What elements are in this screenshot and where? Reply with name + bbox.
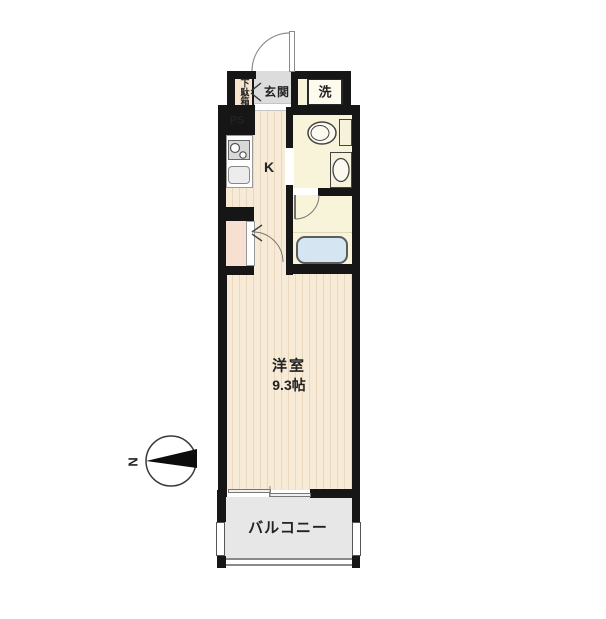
balcony-label: バルコニー <box>248 521 328 536</box>
toilet-tank <box>339 119 352 146</box>
bathtub <box>296 236 348 264</box>
wall-segment <box>291 71 298 108</box>
wall-segment <box>217 556 226 568</box>
entry-door-leaf <box>289 31 295 72</box>
wall-segment <box>352 107 360 497</box>
wall-segment <box>218 207 254 221</box>
wall-segment <box>218 275 227 497</box>
wall-segment <box>343 71 351 108</box>
bathtub-surround-line <box>292 232 352 233</box>
kitchen-label: K <box>264 160 274 174</box>
room-size-label: 9.3帖 <box>272 378 305 392</box>
wall-segment <box>286 185 293 275</box>
washroom-doorway <box>285 148 294 185</box>
compass-needle <box>146 449 197 468</box>
entry-door-swing-arc <box>252 33 290 71</box>
wall-segment <box>286 107 293 148</box>
wall-segment <box>318 188 360 196</box>
balcony-railing-bottom <box>226 558 352 566</box>
wall-segment <box>292 105 360 115</box>
compass-circle <box>146 436 196 486</box>
sliding-window-pane <box>228 489 271 493</box>
wall-segment <box>218 266 254 275</box>
pipe-space-label: PS <box>230 116 245 127</box>
balcony-railing-left <box>216 522 225 556</box>
wall-segment <box>352 556 360 568</box>
sliding-window-pane <box>269 493 311 497</box>
vanity-counter <box>330 152 352 188</box>
wall-segment <box>218 107 226 275</box>
kitchen-sink <box>228 166 250 184</box>
compass-north-label: N <box>127 457 140 466</box>
shoe-cabinet-label: 下駄箱 <box>240 79 249 106</box>
floor-plan: 玄関 下駄箱 洗 PS K 洋室 9.3帖 バルコニー N <box>0 0 606 619</box>
room-name-label: 洋室 <box>272 359 306 374</box>
wall-segment <box>217 490 226 522</box>
closet-door <box>246 221 255 266</box>
stove <box>228 140 250 160</box>
entrance-label: 玄関 <box>264 86 290 98</box>
washer-label: 洗 <box>318 86 331 99</box>
balcony-railing-right <box>352 522 361 556</box>
wall-segment <box>352 497 360 522</box>
wall-segment <box>227 71 235 108</box>
wall-segment <box>286 264 360 274</box>
